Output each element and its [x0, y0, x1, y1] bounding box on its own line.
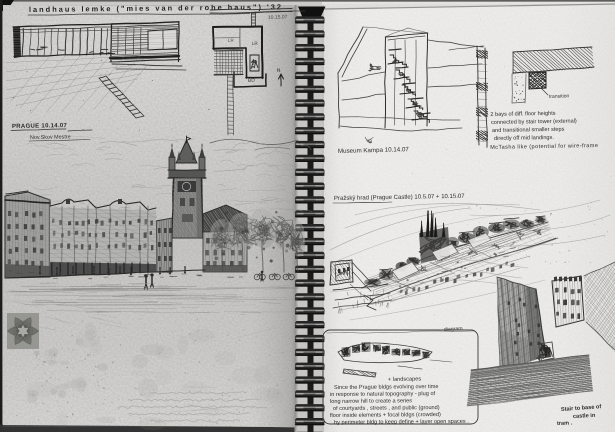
svg-text:BD: BD [248, 78, 256, 84]
svg-text:10.15.07: 10.15.07 [268, 14, 288, 21]
svg-text:+ landscapes: + landscapes [388, 376, 421, 383]
svg-text:and transitional smaller st: and transitional smaller steps [492, 127, 565, 134]
svg-text:in response to natural topo: in response to natural topography - plug… [330, 391, 436, 398]
svg-text:directly off mid landings.: directly off mid landings. [494, 135, 554, 142]
svg-text:· 2 bays of diff. floor heig: · 2 bays of diff. floor heights [487, 111, 556, 118]
svg-text:LR: LR [252, 41, 259, 46]
svg-text:Nov.Skov Mestre: Nov.Skov Mestre [30, 134, 71, 141]
svg-text:floor inside elements + focal: floor inside elements + focal bldgs (cro… [330, 412, 441, 419]
svg-text:by perimeter bldg to keep d: by perimeter bldg to keep define + layer… [334, 419, 469, 426]
svg-text:LR: LR [228, 38, 235, 43]
svg-text:castle in: castle in [573, 413, 596, 420]
svg-text:Since the Prague bldgs evo: Since the Prague bldgs evolving over tim… [334, 384, 439, 391]
svg-text:of courtyards , streets , and: of courtyards , streets , and public (gr… [333, 405, 440, 412]
svg-text:tram .: tram . [557, 420, 573, 427]
svg-text:diagram: diagram [444, 326, 463, 333]
svg-text:long narrow hill to creat: long narrow hill to create a series [330, 398, 412, 405]
svg-text:transition: transition [549, 93, 570, 100]
